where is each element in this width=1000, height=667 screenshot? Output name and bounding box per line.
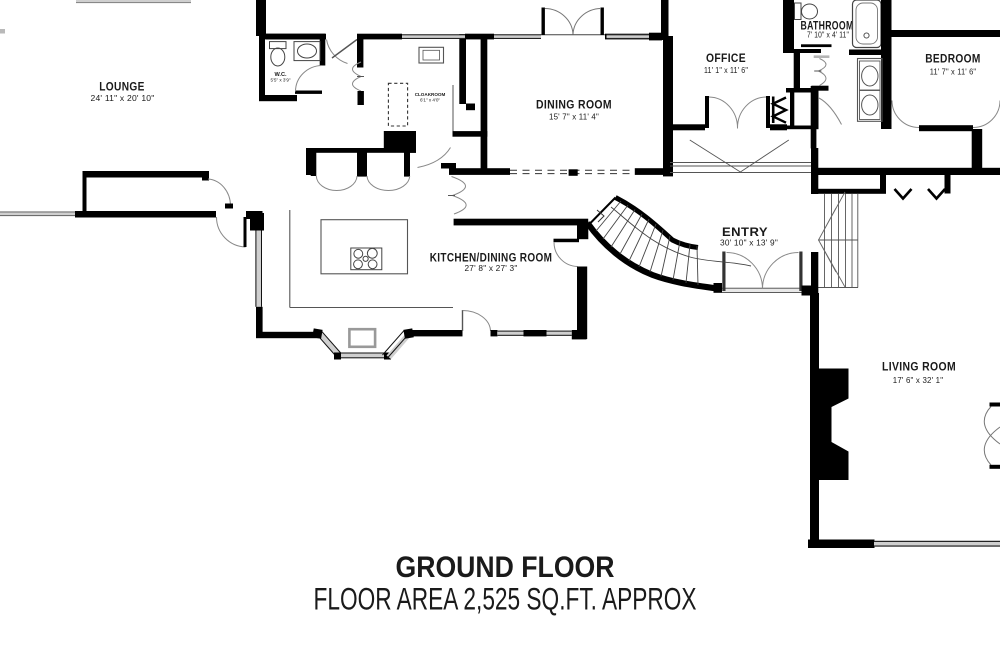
svg-text:FLOOR AREA 2,525 SQ.FT. APPROX: FLOOR AREA 2,525 SQ.FT. APPROX — [314, 581, 697, 617]
svg-text:5'5" x 3'9": 5'5" x 3'9" — [270, 78, 290, 83]
svg-text:24' 11" x 20' 10": 24' 11" x 20' 10" — [91, 93, 155, 103]
svg-text:LOUNGE: LOUNGE — [99, 82, 145, 94]
svg-text:11' 1" x 11' 6": 11' 1" x 11' 6" — [704, 65, 748, 75]
svg-text:6'1" x 4'0": 6'1" x 4'0" — [420, 98, 440, 103]
svg-text:OFFICE: OFFICE — [706, 53, 746, 65]
svg-text:27' 8" x 27' 3": 27' 8" x 27' 3" — [465, 263, 518, 273]
svg-text:7' 10" x 4' 11": 7' 10" x 4' 11" — [807, 30, 849, 40]
svg-text:CLOAKROOM: CLOAKROOM — [415, 92, 446, 97]
svg-text:GROUND FLOOR: GROUND FLOOR — [396, 551, 615, 584]
svg-text:DINING ROOM: DINING ROOM — [536, 100, 612, 112]
svg-text:11' 7" x 11' 6": 11' 7" x 11' 6" — [930, 67, 977, 77]
svg-text:30' 10" x 13' 9": 30' 10" x 13' 9" — [720, 238, 778, 248]
svg-text:LIVING ROOM: LIVING ROOM — [882, 362, 956, 374]
svg-text:BEDROOM: BEDROOM — [925, 54, 981, 66]
svg-text:17' 6" x 32' 1": 17' 6" x 32' 1" — [893, 375, 944, 385]
svg-text:15' 7" x 11' 4": 15' 7" x 11' 4" — [549, 112, 599, 122]
